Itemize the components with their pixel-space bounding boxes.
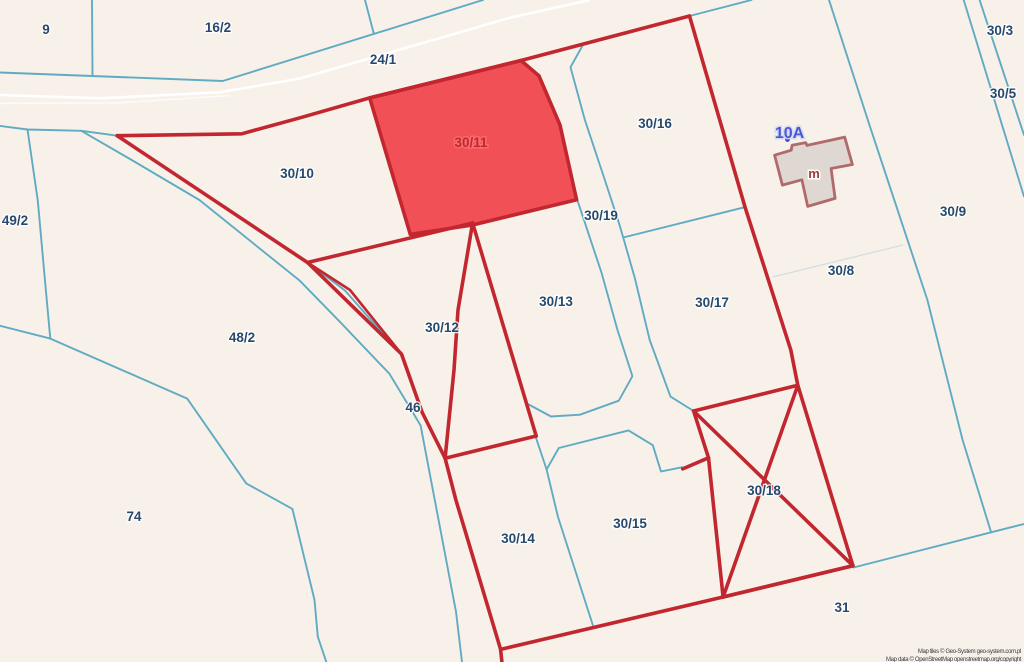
svg-text:30/11: 30/11 — [454, 135, 488, 150]
svg-text:30/14: 30/14 — [501, 531, 535, 546]
svg-text:30/19: 30/19 — [584, 208, 618, 223]
svg-text:30/17: 30/17 — [695, 295, 729, 310]
svg-text:30/13: 30/13 — [539, 294, 573, 309]
svg-text:m: m — [808, 166, 820, 181]
svg-text:48/2: 48/2 — [229, 330, 255, 345]
svg-text:Map data © OpenStreetMap opens: Map data © OpenStreetMap openstreetmap.o… — [886, 656, 1022, 662]
svg-text:24/1: 24/1 — [370, 52, 397, 67]
svg-text:30/10: 30/10 — [280, 166, 314, 181]
svg-text:Map tiles © Geo-System geo-sys: Map tiles © Geo-System geo-system.com.pl — [918, 648, 1021, 655]
svg-text:49/2: 49/2 — [2, 213, 28, 228]
svg-text:16/2: 16/2 — [205, 20, 231, 35]
svg-text:9: 9 — [42, 22, 50, 37]
svg-text:30/8: 30/8 — [828, 263, 855, 278]
svg-text:30/18: 30/18 — [747, 483, 781, 498]
svg-text:31: 31 — [834, 600, 850, 615]
svg-text:30/16: 30/16 — [638, 116, 672, 131]
svg-text:30/3: 30/3 — [987, 23, 1014, 38]
svg-text:30/5: 30/5 — [990, 86, 1017, 101]
svg-text:30/12: 30/12 — [425, 320, 459, 335]
svg-text:46: 46 — [405, 400, 421, 415]
svg-text:74: 74 — [126, 509, 142, 524]
svg-text:30/9: 30/9 — [940, 204, 966, 219]
svg-text:30/15: 30/15 — [613, 516, 647, 531]
svg-text:10A: 10A — [775, 125, 805, 142]
